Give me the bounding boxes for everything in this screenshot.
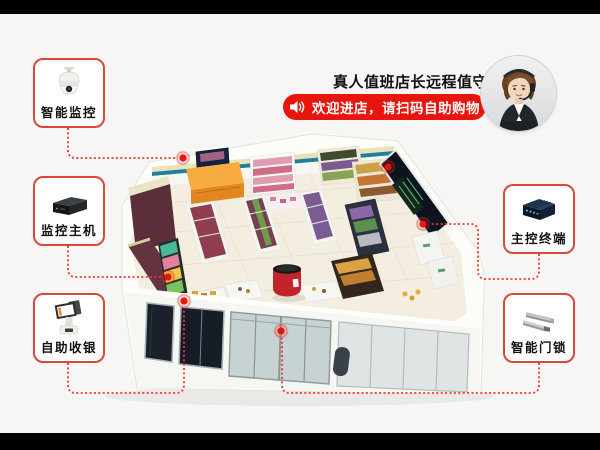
hotspot-door-lock xyxy=(274,324,289,339)
callout-master-terminal[interactable]: 主控终端 xyxy=(503,184,575,254)
letterbox-bottom xyxy=(0,433,600,450)
front-window-1 xyxy=(145,303,174,362)
customer-service-avatar xyxy=(481,56,556,131)
hotspot-camera-2 xyxy=(381,160,396,175)
letterbox-top xyxy=(0,0,600,14)
nvr-device-icon xyxy=(35,188,103,220)
hotspot-host xyxy=(161,270,176,285)
poster-canvas: 智能监控 监控主机 xyxy=(0,0,600,450)
magnetic-lock-icon xyxy=(505,303,573,337)
callout-label: 智能门锁 xyxy=(511,337,567,356)
hotspot-terminal xyxy=(416,217,431,232)
callout-smart-door-lock[interactable]: 智能门锁 xyxy=(503,293,575,363)
callout-monitoring-host[interactable]: 监控主机 xyxy=(33,176,105,246)
callout-label: 监控主机 xyxy=(41,220,97,239)
callout-smart-monitoring[interactable]: 智能监控 xyxy=(33,58,105,128)
announcement-text: 欢迎进店，请扫码自助购物 xyxy=(312,97,480,117)
callout-label: 智能监控 xyxy=(41,102,97,121)
orange-counter xyxy=(186,162,244,204)
speaker-icon xyxy=(289,100,306,114)
control-terminal-icon xyxy=(505,194,573,228)
callout-label: 主控终端 xyxy=(511,228,567,247)
welcome-announcement-pill[interactable]: 欢迎进店，请扫码自助购物 xyxy=(283,94,486,120)
customer-service-agent-illustration xyxy=(481,56,556,131)
remote-duty-slogan: 真人值班店长远程值守 xyxy=(333,71,488,92)
connector-smart-monitoring xyxy=(68,128,177,158)
dome-camera-icon xyxy=(35,65,103,101)
callout-label: 自助收银 xyxy=(41,337,97,356)
red-cylinder-display xyxy=(272,264,306,302)
hotspot-checkout xyxy=(177,294,192,309)
pos-kiosk-icon xyxy=(35,300,103,336)
callout-self-checkout[interactable]: 自助收银 xyxy=(33,293,105,363)
hotspot-camera xyxy=(176,151,191,166)
